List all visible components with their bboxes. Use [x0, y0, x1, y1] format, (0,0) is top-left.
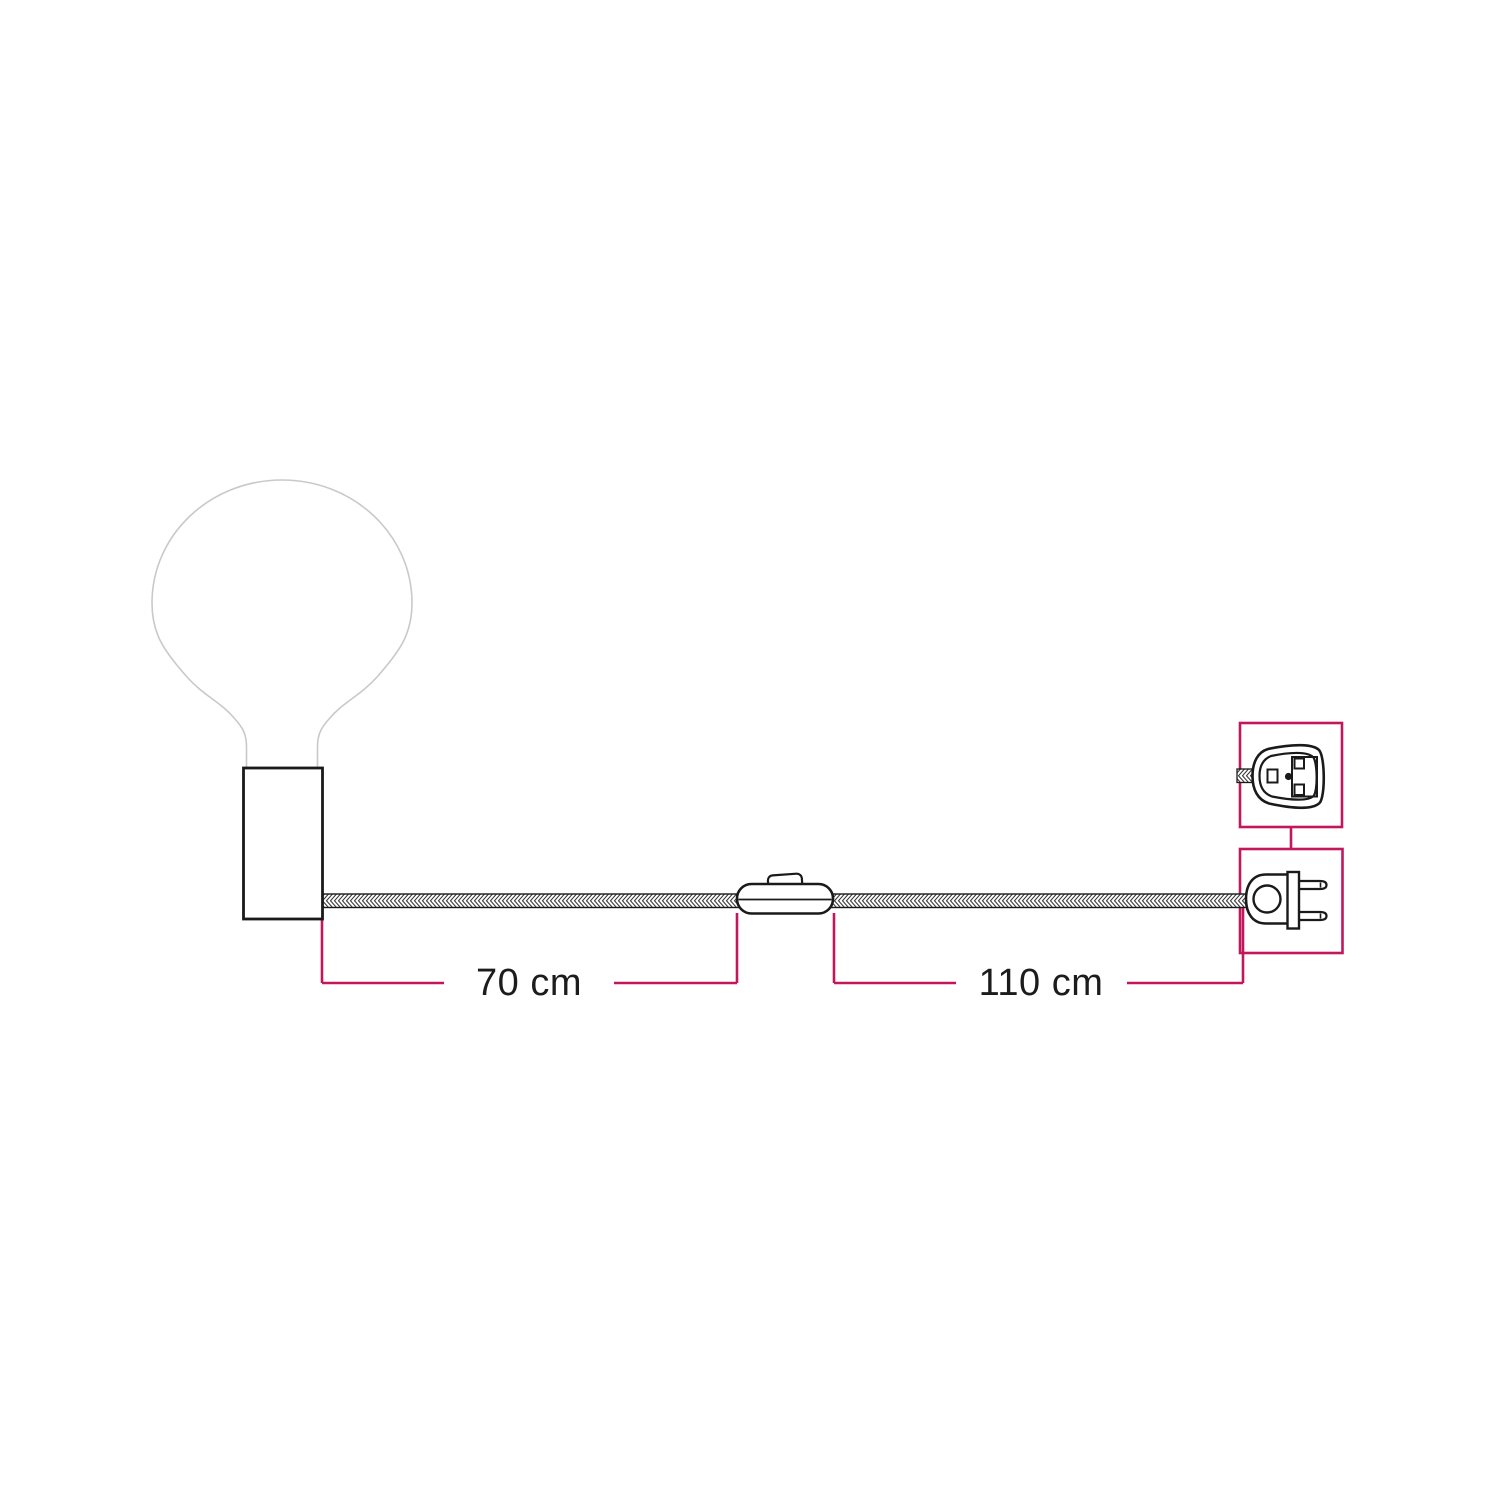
lamp-holder — [244, 768, 323, 919]
inline-switch-icon — [737, 873, 833, 913]
plug-face-slot-bottom — [1295, 785, 1305, 796]
plug-pin-top — [1299, 881, 1327, 889]
two-pin-plug-front-icon — [1253, 745, 1324, 808]
plug-face-center-dot — [1285, 773, 1292, 780]
light-bulb-icon — [152, 480, 412, 769]
plug-face-slot-top — [1295, 759, 1305, 769]
lamp-dimension-diagram: 70 cm 110 cm — [0, 0, 1500, 1500]
plug-plate — [1288, 872, 1300, 929]
dimension-label-70cm: 70 cm — [476, 962, 582, 1004]
plug-pin-bottom — [1299, 912, 1327, 920]
plug-body-ring — [1254, 886, 1281, 913]
plug-face-slot-left — [1268, 770, 1278, 783]
two-pin-plug-side-icon — [1246, 872, 1327, 929]
lamp-dimension-diagram-page: 70 cm 110 cm — [0, 0, 1500, 1500]
dimension-label-110cm: 110 cm — [979, 962, 1104, 1004]
